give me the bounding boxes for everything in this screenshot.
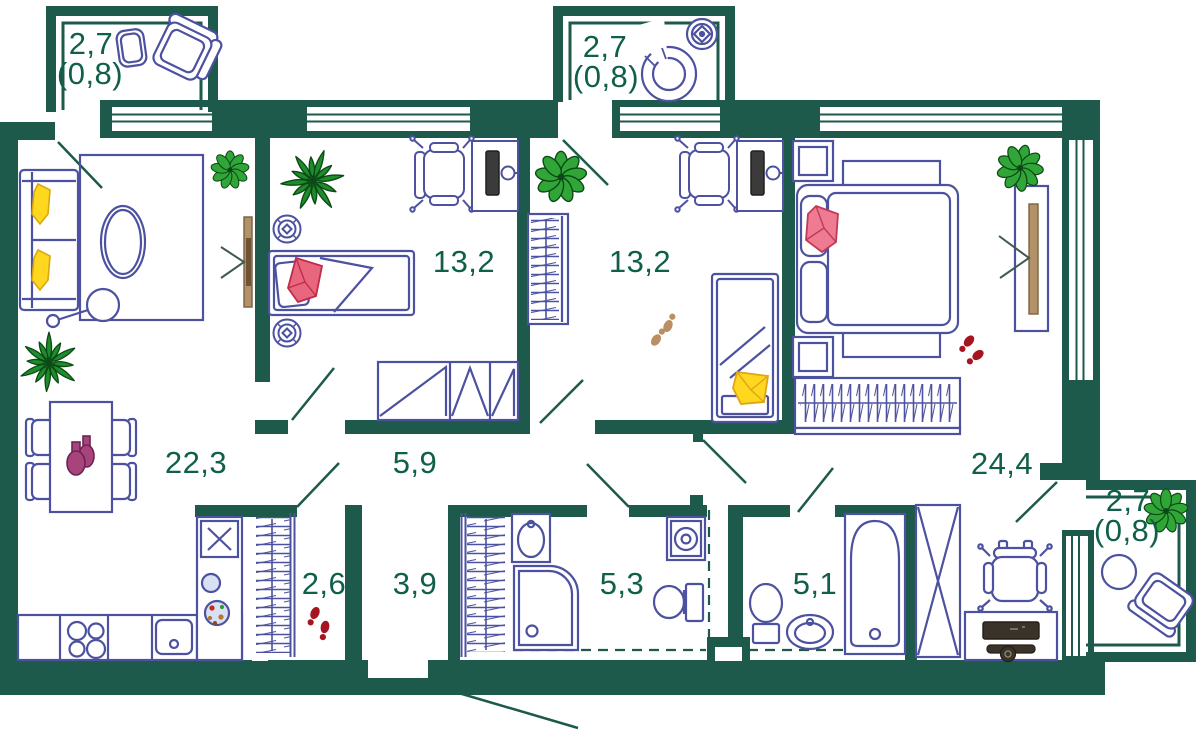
- dining-table: [26, 402, 136, 512]
- window: [1069, 140, 1093, 380]
- sofa: [20, 170, 78, 310]
- dresser: [378, 362, 518, 420]
- washing-machine: [667, 517, 705, 560]
- room-label-entry-hall: 3,9: [393, 566, 438, 601]
- window: [620, 107, 720, 131]
- coffee-table: [101, 206, 145, 278]
- room-label-wardrobe-hall: 2,6: [302, 566, 347, 601]
- footprints: [649, 312, 678, 348]
- bathtub: [845, 514, 905, 654]
- window: [820, 107, 1062, 131]
- room-label-bathroom2: 5,1: [793, 566, 838, 601]
- tv-stand-master: [999, 186, 1048, 331]
- floor-plan: 22,3 5,9 13,2 13,2 24,4 2,6 3,9 5,3 5,1 …: [0, 0, 1200, 730]
- plant: [20, 332, 76, 392]
- room-label-bedroom1: 13,2: [433, 244, 495, 279]
- closet-hangers: [528, 214, 568, 324]
- toilet: [750, 584, 782, 643]
- door-master: [703, 440, 746, 483]
- door-bedroom1: [292, 368, 334, 420]
- plant: [274, 140, 350, 218]
- window: [1066, 536, 1088, 656]
- balcony-tm-coef: (0,8): [573, 59, 639, 94]
- door-bedroom2: [540, 380, 583, 423]
- desk-master: [965, 612, 1057, 662]
- toilet: [654, 584, 703, 621]
- balcony-table: [1102, 555, 1136, 589]
- ship-wheel-icon: [687, 19, 717, 49]
- room-label-bedroom2: 13,2: [609, 244, 671, 279]
- chair-master: [978, 541, 1051, 611]
- slippers: [305, 605, 330, 641]
- balcony-r-coef: (0,8): [1094, 513, 1160, 548]
- drying-rack: [256, 513, 295, 657]
- nightstand: [793, 337, 833, 377]
- slippers: [957, 333, 986, 366]
- bed-single-vertical: [712, 274, 778, 422]
- room-label-living: 22,3: [165, 445, 227, 480]
- towel-radiator: [462, 513, 506, 657]
- desk-and-chair: [675, 136, 784, 211]
- room-label-bathroom1: 5,3: [600, 566, 645, 601]
- door-wardrobe-hall: [297, 463, 339, 507]
- pouf: [274, 320, 301, 347]
- closet-hangers-master: [795, 378, 960, 434]
- tv-living: [221, 217, 252, 307]
- balcony-tl-coef: (0,8): [57, 56, 123, 91]
- bath-sink: [512, 514, 550, 562]
- nightstand: [793, 141, 833, 181]
- wardrobe: [916, 505, 960, 657]
- door-bathroom2: [798, 468, 833, 512]
- window: [307, 107, 470, 131]
- plant: [535, 151, 588, 203]
- plant: [210, 151, 249, 190]
- floor-plan-canvas: 22,3 5,9 13,2 13,2 24,4 2,6 3,9 5,3 5,1 …: [0, 0, 1200, 730]
- desk-and-chair: [410, 136, 519, 211]
- kitchen-column: [197, 517, 242, 660]
- bed-double: [797, 161, 958, 357]
- bed-single: [269, 251, 414, 315]
- pouf: [274, 216, 301, 243]
- room-label-master: 24,4: [971, 446, 1033, 481]
- room-label-hall: 5,9: [393, 445, 438, 480]
- pedestal-sink: [787, 615, 833, 649]
- shower: [514, 566, 578, 650]
- window: [112, 107, 212, 131]
- door-balcony-r: [1016, 482, 1057, 522]
- door-bathroom1: [587, 464, 629, 507]
- pillow-yellow: [733, 372, 768, 404]
